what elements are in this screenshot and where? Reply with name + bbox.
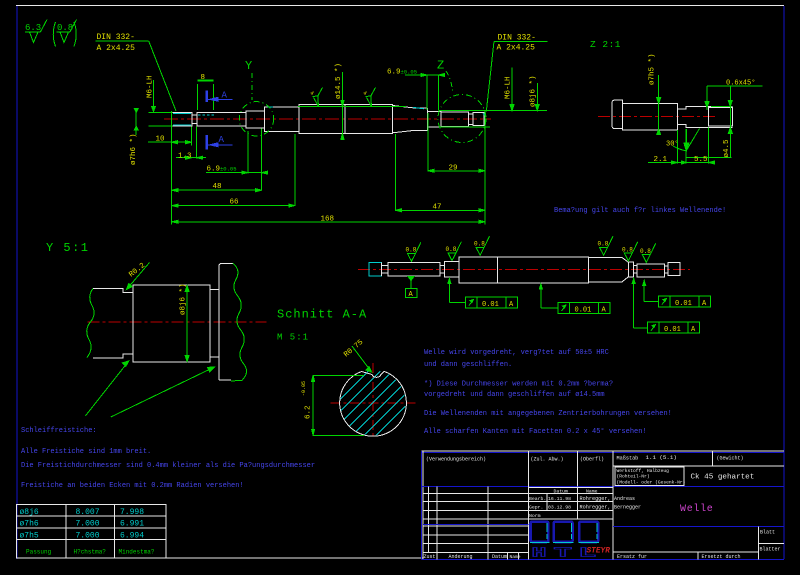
svg-text:Y 5:1: Y 5:1 bbox=[46, 241, 90, 255]
svg-text:6.2: 6.2 bbox=[305, 405, 313, 419]
svg-text:Rohregger,: Rohregger, bbox=[580, 505, 611, 511]
svg-text:Ersetzt durch: Ersetzt durch bbox=[702, 554, 741, 560]
svg-text:Alle Freistiche sind 1mm breit: Alle Freistiche sind 1mm breit. bbox=[21, 448, 151, 456]
svg-text:ø7h6 *): ø7h6 *) bbox=[130, 133, 138, 165]
svg-text:A: A bbox=[219, 135, 225, 145]
svg-text:03.12.98: 03.12.98 bbox=[548, 505, 571, 511]
svg-text:1.1 (5.1): 1.1 (5.1) bbox=[646, 454, 677, 461]
svg-text:6.9: 6.9 bbox=[207, 166, 221, 174]
svg-text:Alle scharfen Kanten mit Facet: Alle scharfen Kanten mit Facetten 0.2 x … bbox=[424, 427, 647, 436]
svg-text:Blatter: Blatter bbox=[760, 546, 781, 552]
svg-text:7.998: 7.998 bbox=[120, 508, 144, 517]
svg-text:Die Wellenenden mit angegebene: Die Wellenenden mit angegebenen Zentrier… bbox=[424, 410, 672, 418]
svg-text:ø7h6: ø7h6 bbox=[20, 520, 39, 529]
svg-text:Schleiffreistiche:: Schleiffreistiche: bbox=[21, 427, 97, 435]
svg-text:(Rohteil-Nr): (Rohteil-Nr) bbox=[617, 474, 650, 480]
svg-text:ø4.5: ø4.5 bbox=[723, 139, 731, 158]
svg-text:0.8: 0.8 bbox=[598, 241, 609, 248]
svg-text:H?chstma?: H?chstma? bbox=[74, 549, 107, 556]
svg-text:Bema?ung gilt auch f?r linkes: Bema?ung gilt auch f?r linkes Wellenende… bbox=[554, 207, 726, 215]
svg-text:Norm: Norm bbox=[529, 513, 541, 519]
svg-text:6.994: 6.994 bbox=[120, 531, 144, 540]
svg-text:1.3: 1.3 bbox=[178, 153, 192, 161]
svg-text:0.8: 0.8 bbox=[446, 246, 457, 253]
svg-text:16.11.98: 16.11.98 bbox=[548, 496, 571, 502]
svg-text:0.01: 0.01 bbox=[675, 300, 692, 308]
svg-text:Welle wird vorgedreht, verg?te: Welle wird vorgedreht, verg?tet auf 50±5… bbox=[424, 349, 609, 357]
svg-text:ø8j6 *): ø8j6 *) bbox=[180, 283, 188, 315]
svg-text:*) Diese Durchmesser werden mi: *) Diese Durchmesser werden mit 0.2mm ?b… bbox=[424, 381, 613, 389]
svg-text:Ersatz fur: Ersatz fur bbox=[617, 554, 647, 560]
svg-text:Maßstab: Maßstab bbox=[617, 456, 639, 462]
svg-text:0.01: 0.01 bbox=[575, 307, 592, 315]
svg-text:(Modell- oder (Gesenk-Nr): (Modell- oder (Gesenk-Nr) bbox=[617, 480, 686, 486]
svg-text:Mindestma?: Mindestma? bbox=[119, 549, 155, 556]
svg-text:±0.05: ±0.05 bbox=[220, 166, 237, 173]
svg-text:Name: Name bbox=[510, 554, 521, 560]
svg-text:168: 168 bbox=[321, 216, 335, 224]
svg-text:6.9: 6.9 bbox=[387, 69, 401, 77]
svg-text:7.000: 7.000 bbox=[76, 520, 100, 529]
svg-text:ø8j6: ø8j6 bbox=[20, 508, 39, 517]
svg-text:Die Freistichdurchmesser sind: Die Freistichdurchmesser sind 0.4mm klei… bbox=[21, 462, 315, 470]
svg-text:Blatt: Blatt bbox=[760, 530, 775, 536]
svg-text:Andreas: Andreas bbox=[614, 496, 635, 502]
svg-text:Z 2:1: Z 2:1 bbox=[590, 39, 621, 50]
svg-text:Rohregger,: Rohregger, bbox=[580, 496, 611, 502]
svg-text:ø8j6 *): ø8j6 *) bbox=[530, 75, 538, 107]
svg-text:(Oberfl): (Oberfl) bbox=[580, 457, 604, 463]
svg-text:0.6x45°: 0.6x45° bbox=[726, 79, 755, 88]
svg-text:und dann geschliffen.: und dann geschliffen. bbox=[424, 361, 512, 369]
svg-text:0.8: 0.8 bbox=[406, 247, 417, 254]
svg-text:0.01: 0.01 bbox=[482, 301, 499, 309]
svg-text:Ck 45 gehartet: Ck 45 gehartet bbox=[691, 474, 755, 482]
svg-text:-0.05: -0.05 bbox=[301, 381, 307, 396]
svg-text:Gepr.: Gepr. bbox=[529, 505, 543, 511]
svg-text:M6-LH: M6-LH bbox=[147, 75, 155, 98]
svg-text:M 5:1: M 5:1 bbox=[277, 333, 309, 343]
svg-text:STEYR: STEYR bbox=[587, 547, 611, 555]
svg-text:5.5: 5.5 bbox=[694, 156, 708, 164]
svg-text:Passung: Passung bbox=[26, 549, 52, 556]
svg-text:ø14.5 *): ø14.5 *) bbox=[335, 63, 343, 99]
svg-text:48: 48 bbox=[213, 183, 222, 191]
svg-text:7.000: 7.000 bbox=[76, 531, 100, 540]
svg-text:(Verwendungsbereich): (Verwendungsbereich) bbox=[426, 457, 486, 463]
svg-text:Bearb.: Bearb. bbox=[529, 496, 546, 502]
svg-text:A 2x4.25: A 2x4.25 bbox=[97, 44, 136, 53]
svg-text:0.8: 0.8 bbox=[474, 241, 485, 248]
svg-text:Datum: Datum bbox=[492, 554, 507, 560]
svg-text:T: T bbox=[554, 546, 573, 561]
svg-text:8: 8 bbox=[201, 74, 206, 82]
svg-text:H: H bbox=[532, 546, 547, 561]
svg-text:0.8: 0.8 bbox=[640, 248, 651, 255]
svg-text:6.991: 6.991 bbox=[120, 520, 144, 529]
svg-text:Anderung: Anderung bbox=[449, 554, 473, 560]
svg-text:Schnitt A-A: Schnitt A-A bbox=[277, 308, 367, 322]
svg-text:Werkstoff, Halbzeug: Werkstoff, Halbzeug bbox=[617, 468, 670, 474]
svg-text:Freistiche an beiden Ecken mit: Freistiche an beiden Ecken mit 0.2mm Rad… bbox=[21, 482, 244, 490]
svg-text:±0.05: ±0.05 bbox=[401, 69, 418, 76]
svg-text:8.007: 8.007 bbox=[76, 508, 100, 517]
svg-text:(Zul. Abw.): (Zul. Abw.) bbox=[531, 457, 564, 463]
svg-text:Z: Z bbox=[437, 59, 444, 73]
svg-text:A: A bbox=[222, 91, 228, 101]
svg-text:30°: 30° bbox=[666, 140, 679, 149]
svg-text:ø7h5: ø7h5 bbox=[20, 531, 39, 540]
svg-text:Bernegger: Bernegger bbox=[614, 505, 641, 511]
svg-text:M6-LH: M6-LH bbox=[505, 76, 513, 99]
svg-text:vorgedreht und dann geschliffe: vorgedreht und dann geschliffen auf ø14.… bbox=[424, 391, 605, 399]
svg-text:29: 29 bbox=[449, 164, 458, 172]
svg-text:A 2x4.25: A 2x4.25 bbox=[497, 44, 536, 53]
svg-text:Y: Y bbox=[245, 59, 252, 73]
svg-text:Zust: Zust bbox=[424, 554, 436, 560]
svg-text:66: 66 bbox=[230, 198, 240, 206]
svg-text:(Gewicht): (Gewicht) bbox=[717, 456, 744, 462]
svg-text:47: 47 bbox=[433, 204, 442, 212]
svg-text:0.01: 0.01 bbox=[664, 326, 681, 334]
svg-text:ø7h5 *): ø7h5 *) bbox=[649, 53, 657, 85]
svg-text:2.1: 2.1 bbox=[654, 156, 668, 164]
svg-text:Welle: Welle bbox=[680, 503, 714, 515]
svg-text:10: 10 bbox=[156, 136, 166, 144]
svg-text:0.8: 0.8 bbox=[622, 247, 633, 254]
